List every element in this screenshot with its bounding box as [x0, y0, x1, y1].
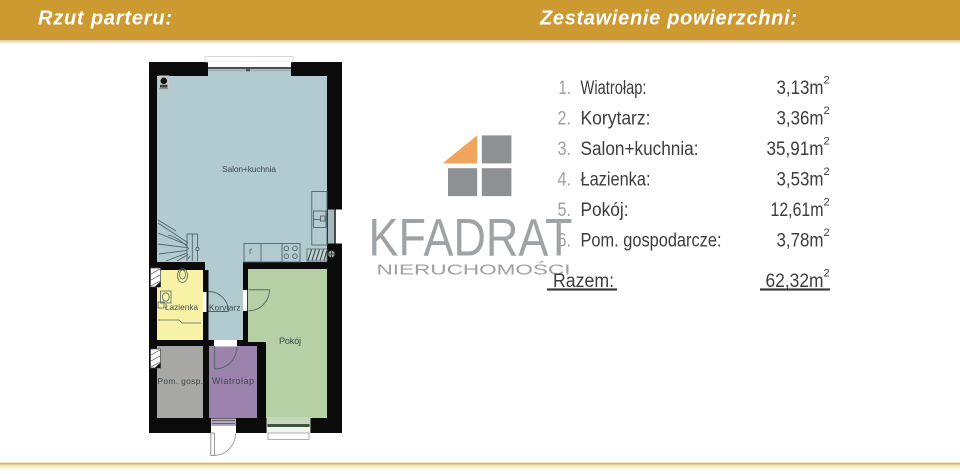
- svg-text:2: 2: [824, 75, 830, 87]
- svg-text:NIERUCHOMOŚCI: NIERUCHOMOŚCI: [377, 260, 571, 278]
- svg-text:3,13m: 3,13m: [777, 78, 824, 99]
- svg-text:Łazienka: Łazienka: [165, 303, 198, 312]
- svg-text:Rzut parteru:: Rzut parteru:: [38, 8, 172, 30]
- svg-text:Pokój:: Pokój:: [581, 200, 629, 221]
- svg-text:KFADRAT: KFADRAT: [369, 209, 573, 268]
- svg-text:Wiatrołap:: Wiatrołap:: [581, 78, 647, 99]
- svg-text:5.: 5.: [558, 200, 572, 221]
- svg-text:3,36m: 3,36m: [777, 109, 824, 130]
- svg-text:3.: 3.: [558, 139, 572, 160]
- svg-text:2: 2: [824, 136, 830, 148]
- svg-text:4.: 4.: [558, 170, 572, 191]
- svg-text:1.: 1.: [559, 78, 572, 99]
- svg-text:Łazienka:: Łazienka:: [581, 170, 651, 191]
- svg-text:2: 2: [824, 267, 830, 279]
- svg-text:2: 2: [824, 227, 830, 239]
- svg-text:Salon+kuchnia:: Salon+kuchnia:: [581, 139, 699, 160]
- svg-text:Zestawienie powierzchni:: Zestawienie powierzchni:: [539, 8, 797, 30]
- svg-text:Salon+kuchnia: Salon+kuchnia: [222, 164, 276, 174]
- svg-text:2.: 2.: [558, 109, 572, 130]
- svg-text:12,61m: 12,61m: [771, 200, 824, 221]
- svg-text:Korytarz:: Korytarz:: [581, 109, 651, 130]
- svg-text:Pom. gosp.: Pom. gosp.: [158, 376, 204, 386]
- svg-text:2: 2: [824, 105, 830, 117]
- svg-text:3,78m: 3,78m: [777, 231, 824, 252]
- svg-text:Pokój: Pokój: [279, 336, 301, 346]
- svg-text:Korytarz: Korytarz: [209, 304, 241, 313]
- svg-text:35,91m: 35,91m: [767, 139, 824, 160]
- svg-text:6.: 6.: [558, 231, 572, 252]
- svg-text:Pom. gospodarcze:: Pom. gospodarcze:: [581, 231, 722, 252]
- svg-text:Wiatrołap: Wiatrołap: [212, 376, 254, 386]
- svg-text:3,53m: 3,53m: [777, 170, 824, 191]
- svg-text:2: 2: [824, 197, 830, 209]
- svg-text:2: 2: [824, 166, 830, 178]
